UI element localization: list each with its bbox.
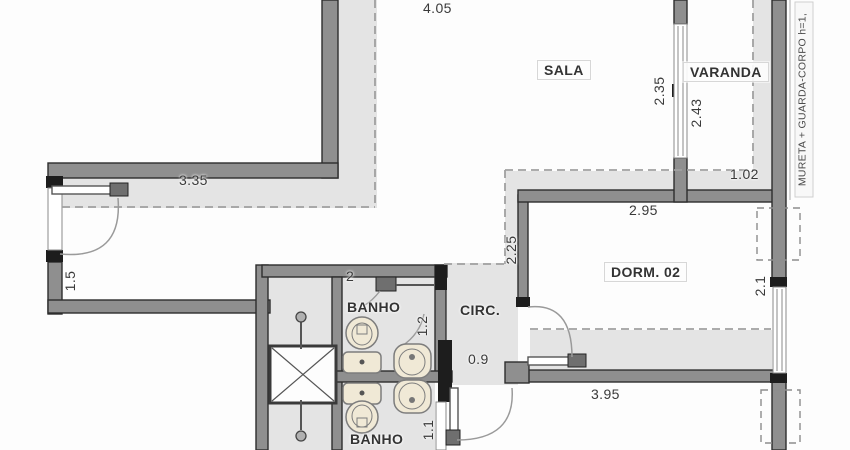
note-guardrail: MURETA + GUARDA-CORPO h=1, (795, 2, 814, 198)
toilet-symbol-banho2 (346, 401, 378, 433)
wall-hall-bottom (48, 300, 270, 313)
room-label-banho2: BANHO (350, 431, 403, 447)
entry-door-leaf (52, 186, 114, 194)
dim-varanda-depth: 2.43 (688, 95, 704, 131)
wall-service-column (256, 265, 268, 450)
dim-sala-top: 4.05 (423, 0, 452, 16)
wall-varanda-upper (674, 0, 687, 24)
sink-tap-banho1 (409, 354, 415, 360)
entry-door-opening (48, 188, 62, 250)
sink-tap-banho2 (409, 397, 415, 403)
dim-dorm-bottom: 3.95 (591, 386, 620, 402)
dim-circ-length: 2.25 (503, 232, 519, 268)
room-label-sala: SALA (537, 60, 591, 80)
washbasin-drain-banho2 (360, 391, 365, 396)
floor-plan: SALA VARANDA DORM. 02 CIRC. BANHO BANHO … (0, 0, 850, 450)
pin-lower-circle (296, 431, 306, 441)
dim-varanda-width: 1.02 (730, 166, 759, 182)
dim-circ-door: 0.9 (468, 351, 489, 367)
room-label-dorm02: DORM. 02 (604, 262, 687, 282)
cap-dorm-window-bottom (770, 373, 787, 383)
wall-varanda-lower (674, 158, 687, 202)
washbasin-drain-banho1 (360, 360, 365, 365)
dorm-window (773, 287, 786, 373)
hatch-topleft-strip (338, 0, 377, 208)
wall-right-upper (772, 0, 786, 285)
varanda-window (674, 24, 687, 158)
room-label-varanda: VARANDA (683, 62, 769, 82)
banho2-opening (436, 402, 446, 450)
dim-dorm-width: 2.95 (629, 202, 658, 218)
wall-right-lower (772, 375, 786, 450)
dim-banho-width: 2 (346, 268, 354, 284)
dim-sala-varanda-opening: 2.35 (651, 73, 667, 109)
dorm-door-hinge (568, 354, 586, 367)
cap-dorm-window-top (770, 277, 787, 287)
dim-hall-depth: 1.5 (62, 264, 78, 298)
cap-dorm-doorway (516, 297, 530, 307)
cap-banho-ne-corner (435, 265, 447, 290)
room-label-banho1: BANHO (347, 299, 400, 315)
room-label-circ: CIRC. (460, 302, 500, 318)
dim-dorm-depth: 2.1 (752, 268, 768, 304)
entry-door-hinge (110, 183, 128, 196)
wall-dorm-left (518, 195, 528, 300)
dim-hall-width: 3.35 (179, 172, 208, 188)
wall-banho-top (262, 265, 447, 277)
banho1-door-hinge (376, 277, 396, 291)
wall-topleft-vertical (322, 0, 338, 178)
wall-dorm-bottom (510, 370, 785, 382)
pin-upper-circle (296, 312, 306, 322)
cap-entry-bottom (46, 250, 63, 262)
circ-door-arc (457, 388, 512, 440)
dorm-door-leaf (528, 357, 574, 365)
dim-banho2-depth: 1.1 (420, 413, 436, 447)
dim-banho1-depth: 1.2 (414, 309, 430, 343)
hatch-varanda-strip (753, 0, 772, 190)
toilet-symbol-banho1 (346, 317, 378, 349)
circ-door-leaf (450, 388, 458, 432)
wall-dorm-bottom-step (505, 362, 529, 383)
wall-dorm-top (518, 190, 785, 202)
circ-door-hinge (446, 430, 460, 445)
